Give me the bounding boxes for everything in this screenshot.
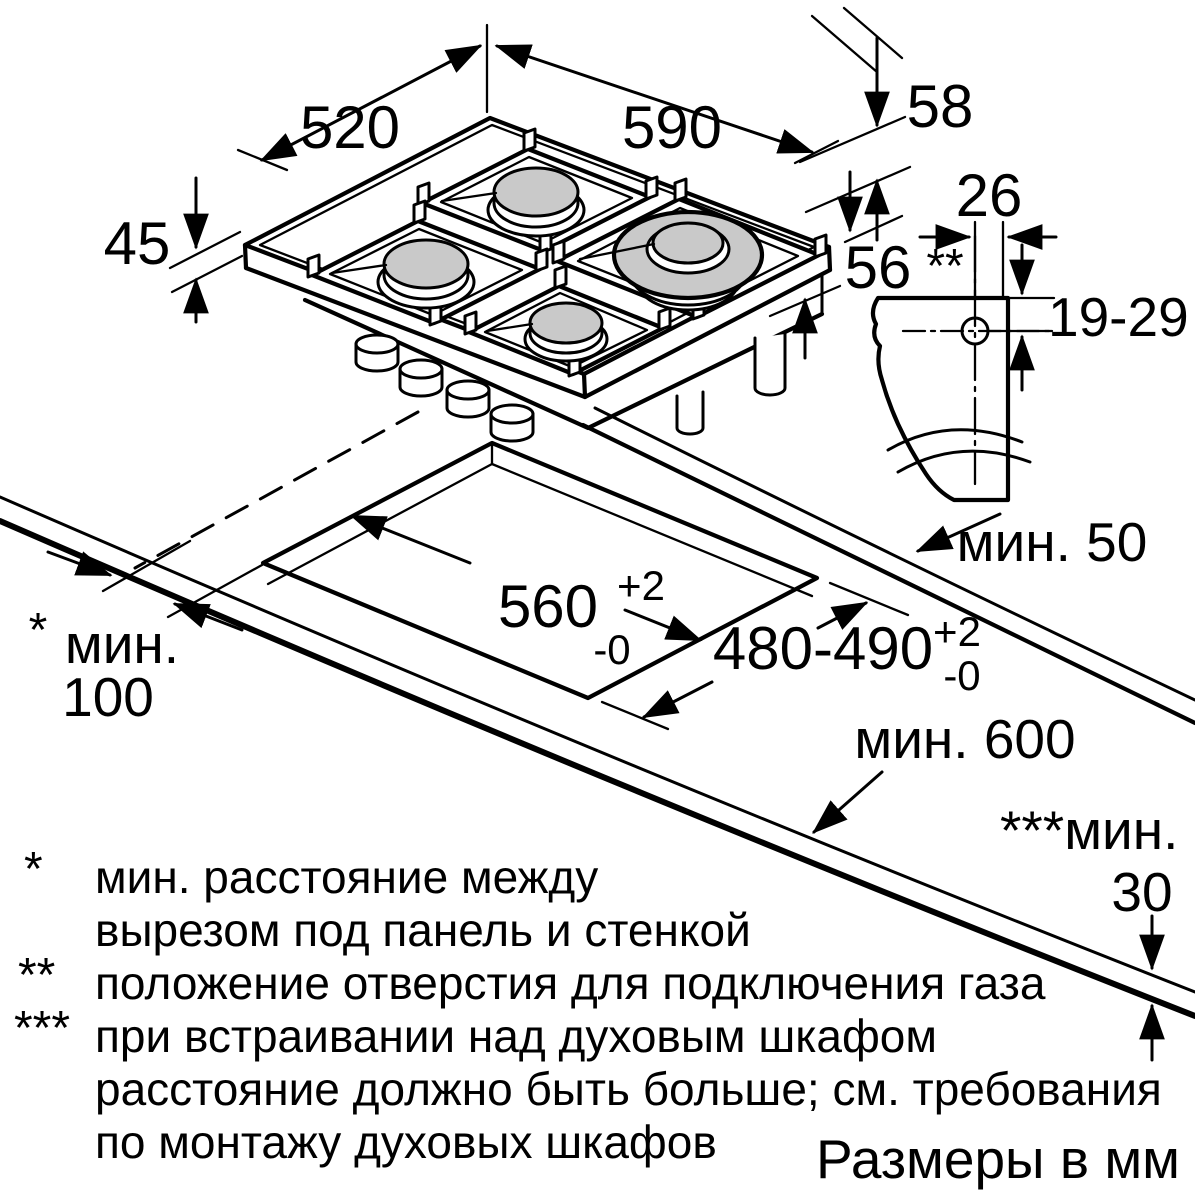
extension-tick bbox=[602, 702, 668, 729]
dim-560-label: 560 bbox=[498, 573, 598, 640]
footnote-1-marker: * bbox=[24, 843, 43, 896]
footnote-3-marker: *** bbox=[14, 1002, 70, 1055]
min-100-marker: * bbox=[29, 604, 48, 657]
control-knobs bbox=[356, 335, 533, 441]
hob-foot-peg bbox=[677, 392, 703, 434]
pan-support-tab bbox=[815, 235, 826, 257]
extension-tick bbox=[795, 141, 838, 163]
pan-support-tab bbox=[555, 266, 566, 288]
pan-support-tab bbox=[308, 255, 319, 277]
pan-support-tab bbox=[646, 177, 657, 199]
extension-line bbox=[812, 16, 877, 72]
burner-cap bbox=[530, 303, 602, 343]
hob-edge-left-corner bbox=[245, 245, 246, 268]
footnotes: * мин. расстояние между вырезом под пане… bbox=[14, 843, 1162, 1168]
dim-min-100: * мин. 100 bbox=[29, 541, 262, 728]
burner-cap bbox=[653, 223, 723, 263]
pan-support-tab bbox=[465, 312, 476, 334]
dim-480-490-tol-upper: +2 bbox=[933, 608, 981, 655]
extension-tick bbox=[830, 583, 908, 615]
min-30-value: 30 bbox=[1111, 861, 1172, 923]
extension-line bbox=[806, 167, 910, 212]
hob-foot-peg bbox=[755, 334, 785, 395]
dim-560-tol-upper: +2 bbox=[617, 562, 665, 609]
dim-min-50: мин. 50 bbox=[918, 511, 1147, 573]
dim-590-label: 590 bbox=[622, 94, 722, 161]
dim-480-490-tol-lower: -0 bbox=[943, 652, 980, 699]
hob-edge-right-corner bbox=[829, 247, 830, 270]
leader-arrow bbox=[814, 772, 882, 832]
pan-support-tab bbox=[659, 308, 670, 330]
gas-marker-label: ** bbox=[926, 240, 963, 293]
extension-tick bbox=[168, 565, 262, 617]
footnote-3-line-2: расстояние должно быть больше; см. требо… bbox=[95, 1063, 1162, 1115]
pan-support-tab bbox=[536, 249, 547, 271]
hob-installation-diagram: 520 590 58 45 56 bbox=[0, 0, 1195, 1200]
footnote-1-line-2: вырезом под панель и стенкой bbox=[95, 904, 751, 956]
min-100-value: 100 bbox=[62, 666, 154, 728]
min-50-label: мин. 50 bbox=[957, 511, 1148, 573]
installation-diagram-page: 520 590 58 45 56 bbox=[0, 0, 1195, 1200]
units-note: Размеры в мм bbox=[816, 1128, 1180, 1190]
dim-19-29: 19-29 bbox=[988, 245, 1189, 390]
knob-top bbox=[356, 335, 398, 353]
dim-58-label: 58 bbox=[907, 73, 974, 140]
knob-top bbox=[447, 381, 489, 399]
knob-top bbox=[400, 360, 442, 378]
dim-56-label: 56 bbox=[845, 234, 912, 301]
footnote-1-line-1: мин. расстояние между bbox=[95, 851, 598, 903]
pan-support-tab bbox=[675, 179, 686, 201]
dim-26-label: 26 bbox=[956, 162, 1023, 229]
pan-support-tab bbox=[414, 201, 425, 223]
footnote-2-line-1: положение отверстия для подключения газа bbox=[95, 957, 1046, 1009]
extension-tick bbox=[238, 150, 287, 170]
dim-45-label: 45 bbox=[104, 210, 171, 277]
dim-19-29-label: 19-29 bbox=[1048, 286, 1189, 348]
dim-480-490-label: 480-490 bbox=[713, 615, 933, 682]
pan-support-tab bbox=[524, 129, 535, 151]
hob bbox=[245, 118, 830, 441]
dim-26: 26 ** bbox=[920, 162, 1056, 300]
extension-line bbox=[800, 117, 905, 162]
dimension-line bbox=[644, 682, 712, 717]
dim-520-label: 520 bbox=[300, 94, 400, 161]
dim-45: 45 bbox=[104, 178, 242, 322]
dim-590: 590 bbox=[497, 8, 902, 163]
min-30-label: ***мин. bbox=[1000, 799, 1178, 861]
pan-support-tab bbox=[553, 241, 564, 263]
burner-cap bbox=[494, 168, 578, 216]
footnote-3-line-1: при встраивании над духовым шкафом bbox=[95, 1010, 937, 1062]
dim-560-tol-lower: -0 bbox=[593, 626, 630, 673]
dim-min-30: ***мин. 30 bbox=[1000, 799, 1178, 1060]
hob-edge-front-corner bbox=[584, 374, 585, 397]
footnote-3-line-3: по монтажу духовых шкафов bbox=[95, 1116, 717, 1168]
footnote-2-marker: ** bbox=[18, 949, 55, 1002]
min-600-label: мин. 600 bbox=[854, 708, 1075, 770]
burner-cap bbox=[384, 240, 468, 288]
dim-58: 58 bbox=[800, 38, 973, 240]
knob-top bbox=[491, 405, 533, 423]
